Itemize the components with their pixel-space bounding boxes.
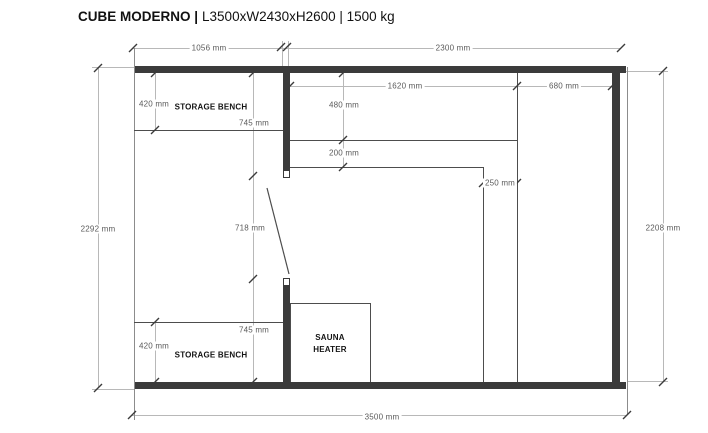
extension-line	[288, 41, 289, 67]
top-wall	[135, 66, 626, 73]
right-wall	[612, 66, 620, 389]
floor-plan-sheet: CUBE MODERNO |L3500xW2430xH2600 | 1500 k…	[0, 0, 708, 433]
dim-label-680: 680 mm	[547, 82, 581, 91]
extension-line	[627, 381, 668, 382]
door-leaf-line	[267, 188, 289, 274]
dimension-ticks	[94, 43, 667, 419]
bottom-wall	[135, 382, 626, 389]
door-jamb-lower	[283, 278, 290, 286]
right-outer-line	[627, 67, 628, 415]
bench-bottom-front-edge	[134, 322, 284, 323]
dim-label-2292: 2292 mm	[79, 225, 118, 234]
door-jamb-upper	[283, 170, 290, 178]
dim-label-2300: 2300 mm	[434, 44, 473, 53]
dimension-line-420-bottom	[155, 322, 156, 382]
sauna-heater-label-line1: SAUNA	[313, 332, 347, 344]
dim-label-420-bottom: 420 mm	[137, 342, 171, 351]
dim-label-745-bottom: 745 mm	[237, 326, 271, 335]
dim-label-2208: 2208 mm	[644, 224, 683, 233]
bench-top-front-edge	[134, 130, 284, 131]
dim-label-200: 200 mm	[327, 149, 361, 158]
extension-line	[92, 67, 134, 68]
dim-label-480: 480 mm	[327, 101, 361, 110]
dim-label-1620: 1620 mm	[386, 82, 425, 91]
extension-line	[92, 389, 134, 390]
sauna-heater-label-line2: HEATER	[313, 344, 347, 356]
dim-label-745-top: 745 mm	[237, 119, 271, 128]
door-wall-upper	[283, 71, 290, 170]
sauna-partition-left	[483, 167, 484, 383]
product-specs: L3500xW2430xH2600 | 1500 kg	[202, 9, 395, 24]
product-name: CUBE MODERNO |	[78, 9, 198, 24]
storage-bench-top-label: STORAGE BENCH	[175, 103, 248, 112]
extension-line	[282, 41, 283, 67]
dim-label-718: 718 mm	[233, 224, 267, 233]
sauna-heater-label: SAUNA HEATER	[313, 332, 347, 356]
storage-bench-bottom-label: STORAGE BENCH	[175, 351, 248, 360]
dim-label-250: 250 mm	[483, 179, 517, 188]
drawing-title: CUBE MODERNO |L3500xW2430xH2600 | 1500 k…	[78, 9, 395, 24]
sauna-partition-right	[517, 73, 518, 383]
dim-label-1056: 1056 mm	[190, 44, 229, 53]
dim-label-420-top: 420 mm	[137, 100, 171, 109]
sauna-step-edge	[290, 167, 483, 168]
dim-label-3500: 3500 mm	[363, 413, 402, 422]
sauna-bench-edge	[290, 140, 517, 141]
door-wall-lower	[283, 286, 290, 382]
left-wall-line	[134, 48, 135, 420]
